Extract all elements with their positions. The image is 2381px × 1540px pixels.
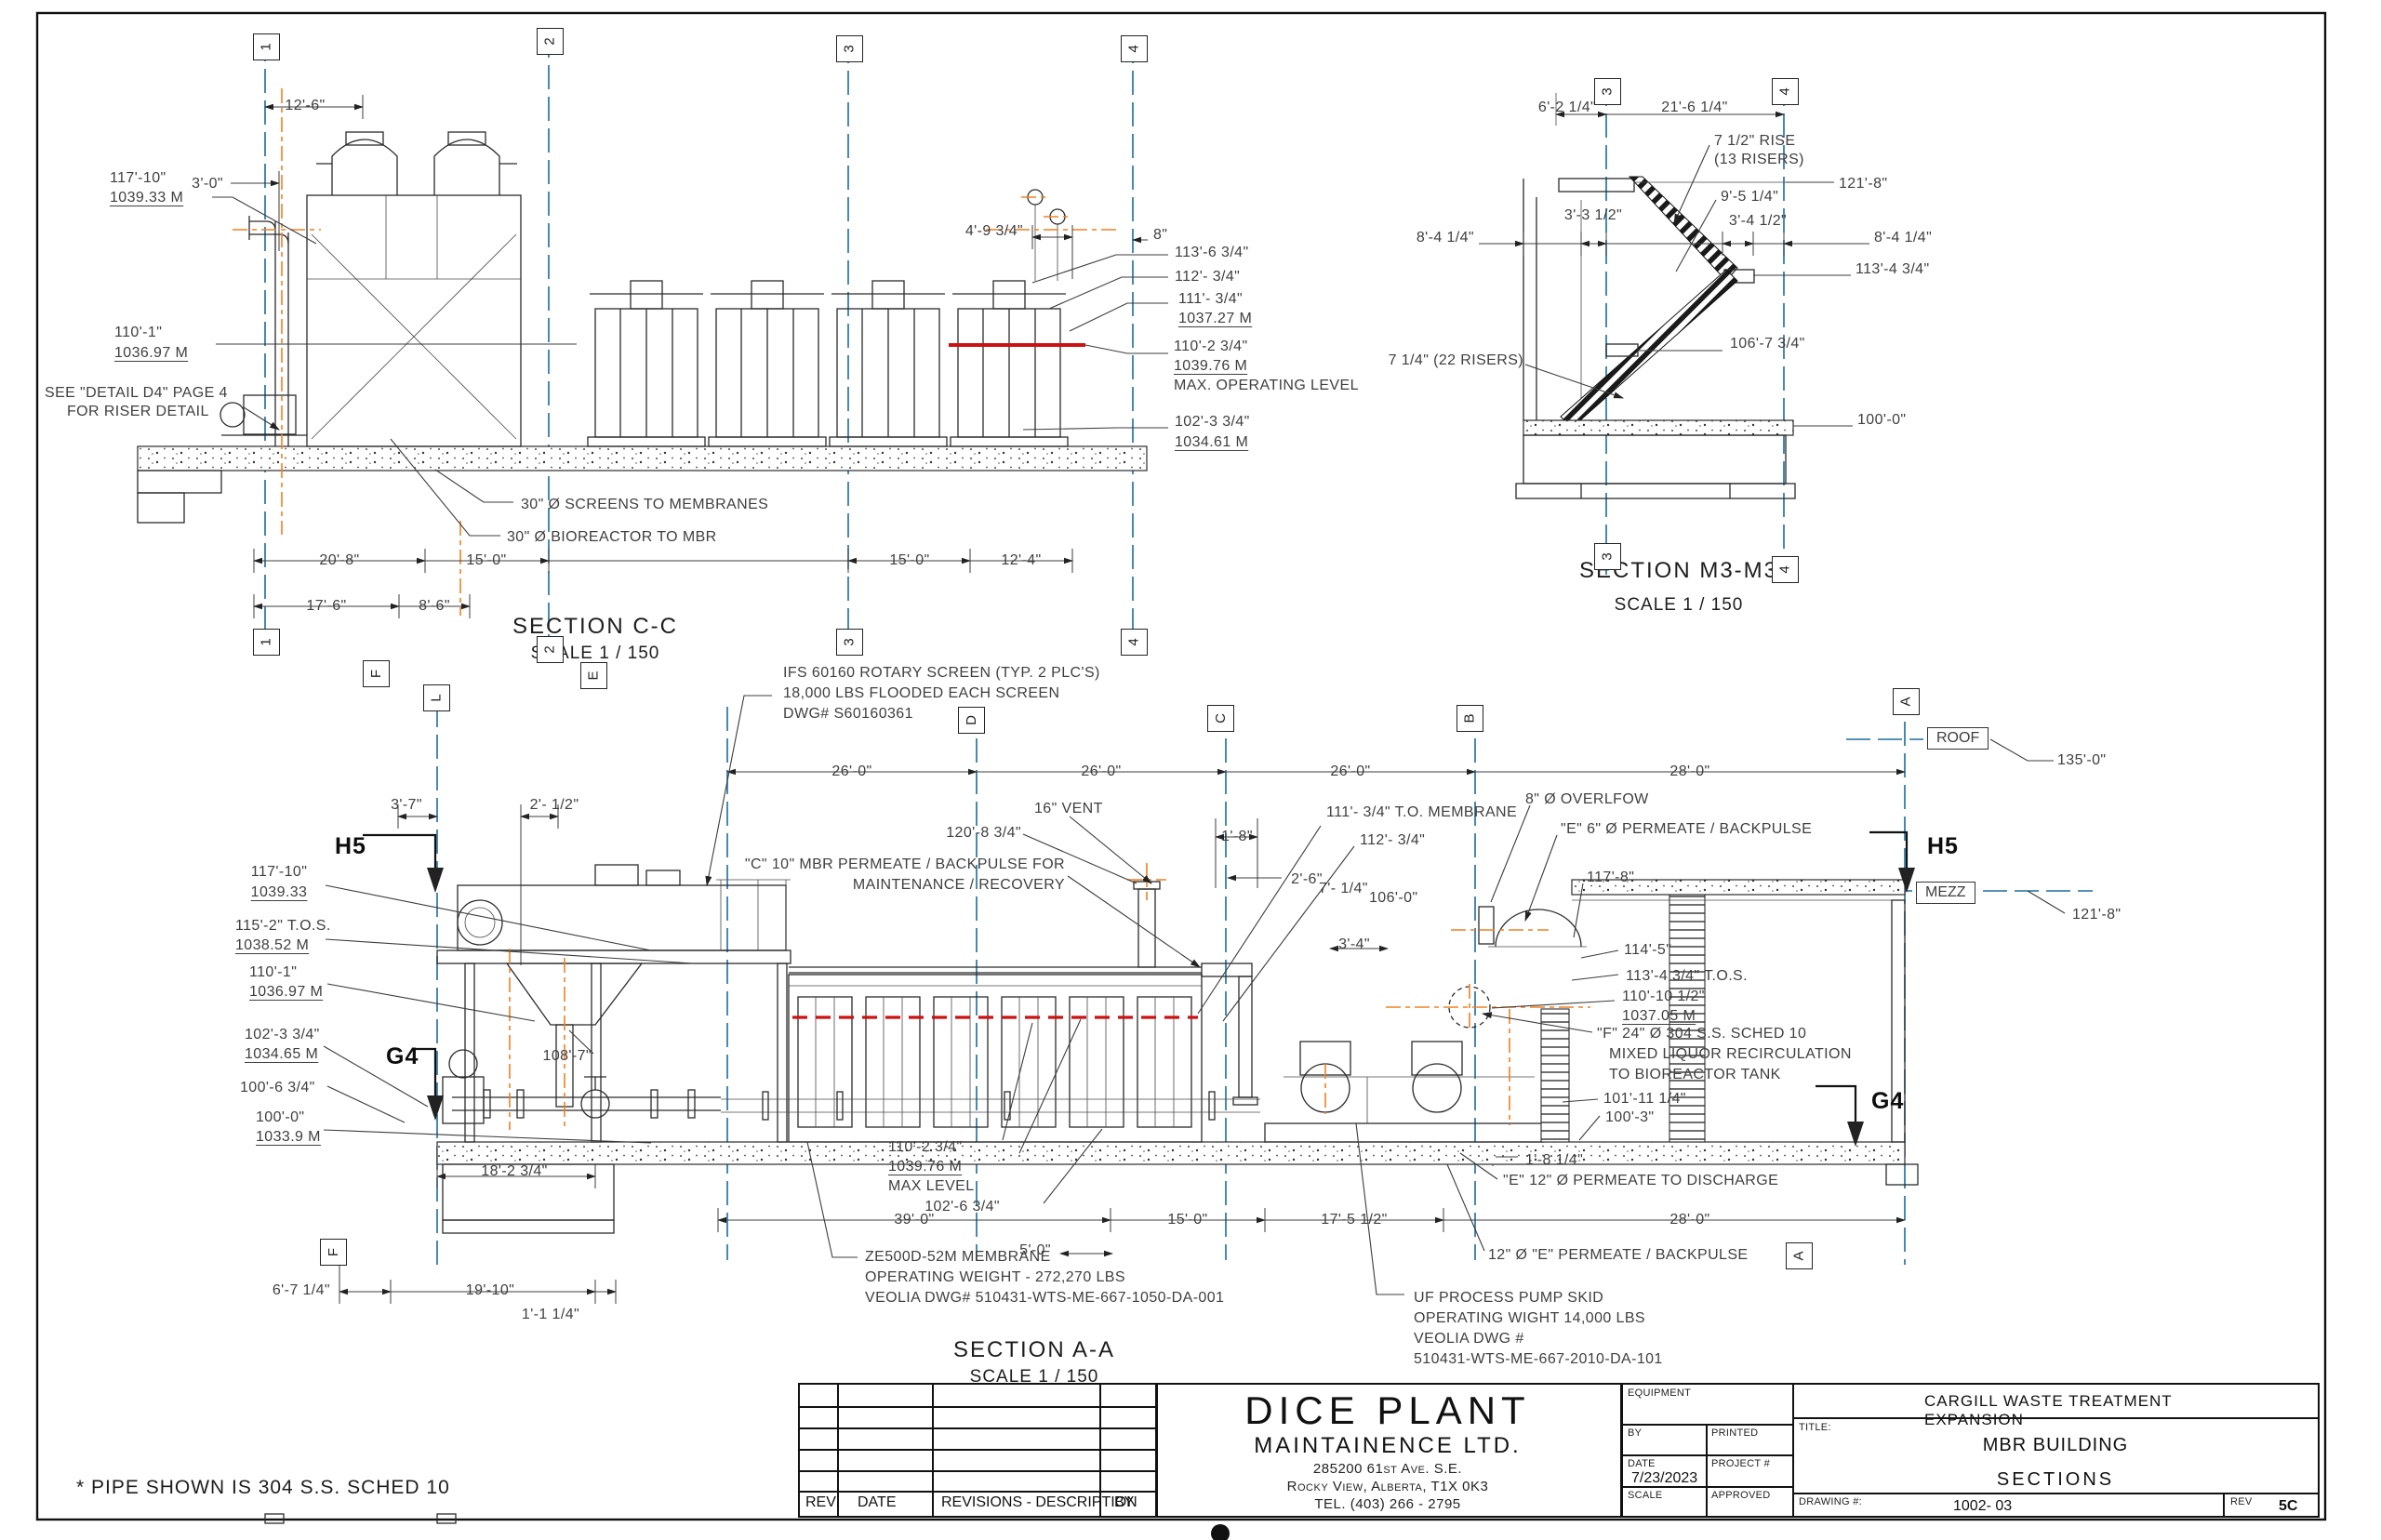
pipe-note: MIXED LIQUOR RECIRCULATION [1609,1045,1852,1063]
level-label: 113'-4 3/4" T.O.S. [1626,967,1748,985]
section-cut-marker: H5 [1927,833,1959,860]
grid-bubble: 4 [1772,556,1799,583]
elevation-label: 1039.33 M [110,189,183,206]
pipe-note: 8" Ø OVERLFOW [1525,790,1649,808]
level-label: 101'-11 1/4" [1603,1090,1686,1108]
level-label: 121'-8" [2072,906,2121,923]
equipment-note: 510431-WTS-ME-667-2010-DA-101 [1414,1350,1663,1368]
level-label: 114'-5" [1624,941,1671,959]
dim-label: 39'-0" [894,1211,934,1228]
elevation-label: 1038.52 M [235,936,309,954]
elevation-label: 110'-1" [114,324,162,341]
by-label: BY [1628,1427,1642,1439]
dim-label: 17'-6" [306,597,346,615]
dim-label: 15'-0" [466,551,506,569]
grid-bubble: A [1786,1242,1813,1269]
dim-label: 18'-2 3/4" [481,1162,547,1180]
equipment-note: OPERATING WEIGHT - 272,270 LBS [865,1268,1125,1286]
dim-label: 3'-3 1/2" [1564,206,1622,224]
equipment-note: UF PROCESS PUMP SKID [1414,1289,1603,1307]
elevation-label: 100'-6 3/4" [240,1079,315,1096]
grid-bubble: 3 [1594,78,1621,105]
level-label: 1034.61 M [1175,433,1248,451]
dim-label: 21'-6 1/4" [1661,99,1727,116]
dim-label: 28'-0" [1669,1211,1709,1228]
dim-label: 19'-10" [466,1281,514,1299]
grid-bubble: B [1457,705,1483,732]
dim-label: 17'-5 1/2" [1321,1211,1387,1228]
section-cut-marker: G4 [386,1043,419,1070]
drawing-sheet: 12'-6" 3'-0" 117'-10" 1039.33 M 110'-1" … [0,0,2381,1540]
dim-label: 12'-6" [285,97,325,114]
grid-bubble: 4 [1121,629,1148,656]
section-cut-marker: G4 [1871,1088,1904,1115]
level-label: 108'-7" [543,1047,592,1065]
dim-label: 26'-0" [831,763,871,780]
pipe-note: MAINTENANCE / RECOVERY [853,876,1065,894]
pipe-note: "E" 12" Ø PERMEATE TO DISCHARGE [1503,1172,1778,1189]
stair-note: 7 1/4" (22 RISERS) [1389,352,1523,369]
grid-bubble: D [958,707,985,734]
dim-label: 2'-6" [1291,870,1323,888]
grid-bubble: 3 [1594,543,1621,570]
elevation-label: 100'-0" [256,1109,304,1126]
equipment-note: DWG# S60160361 [783,705,913,723]
elevation-label: 1036.97 M [249,983,323,1001]
grid-bubble: 1 [253,33,280,60]
dim-label: 3'-4 1/2" [1729,212,1787,230]
elevation-label: 115'-2" T.O.S. [235,917,331,935]
company-phone: TEL. (403) 266 - 2795 [1314,1496,1460,1512]
level-label: 1037.27 M [1178,310,1252,327]
pipe-note: TO BIOREACTOR TANK [1609,1066,1781,1083]
level-label: 112'- 3/4" [1360,831,1425,849]
date-label: DATE [1628,1458,1656,1469]
elevation-label: 1033.9 M [256,1128,321,1146]
equipment-note: ZE500D-52M MEMBRANE [865,1248,1051,1266]
grid-bubble: 2 [537,636,564,663]
dim-label: 1'-8 1/4" [1525,1151,1583,1169]
level-note: MAX. OPERATING LEVEL [1174,377,1359,394]
dim-label: 20'-8" [319,551,359,569]
level-label: 110'-2 3/4" [1174,338,1248,355]
level-label: 113'-4 3/4" [1856,260,1930,278]
company-name: MAINTAINENCE LTD. [1254,1433,1521,1459]
stair-note: 7 1/2" RISE [1714,132,1795,150]
approved-label: APPROVED [1711,1490,1771,1501]
level-label: 135'-0" [2057,751,2106,769]
level-note: MAX LEVEL [888,1177,975,1195]
pipe-note: 30" Ø BIOREACTOR TO MBR [507,528,717,546]
drawing-number: 1002- 03 [1953,1498,2012,1515]
drawing-title: MBR BUILDING [1983,1435,2128,1456]
company-address: 285200 61st Ave. S.E. [1313,1461,1462,1477]
dim-label: 1'-1 1/4" [522,1306,579,1323]
date-value: 7/23/2023 [1631,1470,1697,1487]
dim-label: 8'-4 1/4" [1417,229,1474,246]
date-col-header: DATE [858,1494,896,1511]
level-label: 100'-0" [1857,411,1906,429]
pipe-note: "F" 24" Ø 304 S.S. SCHED 10 [1597,1025,1806,1042]
grid-bubble: 4 [1772,78,1799,105]
dim-label: 28'-0" [1669,763,1709,780]
desc-col-header: REVISIONS - DESCRIPTION [941,1494,1137,1511]
grid-bubble: 2 [537,28,564,55]
dim-label: 2'- 1/2" [530,796,579,814]
dim-label: 15'-0" [889,551,929,569]
title-label: TITLE: [1799,1422,1831,1433]
detail-note: SEE "DETAIL D4" PAGE 4 [45,384,228,402]
scale-label: SCALE [1628,1490,1663,1501]
level-label: 112'- 3/4" [1175,268,1240,285]
dim-label: 1'-8" [1221,828,1253,845]
drawing-linework [0,0,2381,1540]
dim-label: 15'-0" [1167,1211,1207,1228]
dim-label: 4'-9 3/4" [965,222,1023,240]
drawing-number-label: DRAWING #: [1799,1496,1862,1507]
project-label: PROJECT # [1711,1458,1770,1469]
elevation-label: 1034.65 M [245,1045,318,1063]
pipe-note: 12" Ø "E" PERMEATE / BACKPULSE [1488,1246,1749,1264]
dim-label: 26'-0" [1081,763,1121,780]
equipment-note: IFS 60160 ROTARY SCREEN (TYP. 2 PLC'S) [783,664,1100,682]
grid-bubble: F [320,1239,347,1266]
dim-label: 12'-4" [1001,551,1041,569]
equipment-note: 18,000 LBS FLOODED EACH SCREEN [783,684,1059,702]
grid-bubble: L [423,684,450,711]
level-label: 111'- 3/4" [1178,290,1243,308]
level-label: 110'-2 3/4" [888,1138,963,1156]
elevation-label: 110'-1" [249,963,297,981]
equipment-label: EQUIPMENT [1628,1387,1691,1399]
printed-label: PRINTED [1711,1427,1758,1439]
roof-level-tag: ROOF [1927,727,1989,750]
grid-bubble: 3 [836,35,863,62]
level-label: 1039.76 M [888,1158,962,1175]
level-label: 121'-8" [1839,175,1887,192]
grid-bubble: F [363,660,390,687]
equipment-note: VEOLIA DWG# 510431-WTS-ME-667-1050-DA-00… [865,1289,1224,1307]
level-label: 113'-6 3/4" [1175,244,1249,261]
company-address: Rocky View, Alberta, T1X 0K3 [1287,1479,1489,1494]
stair-note: (13 RISERS) [1714,151,1804,168]
project-title: CARGILL WASTE TREATMENT EXPANSION [1924,1392,2187,1429]
dim-label: 6'-7 1/4" [273,1281,330,1299]
grid-bubble: 1 [253,629,280,656]
elevation-label: 117'-10" [251,863,308,881]
level-label: 106'-7 3/4" [1730,335,1805,352]
grid-bubble: A [1893,688,1920,715]
equipment-note: OPERATING WIGHT 14,000 LBS [1414,1309,1645,1327]
pipe-note: "C" 10" MBR PERMEATE / BACKPULSE FOR [745,856,1065,873]
level-label: 117'-8" [1587,869,1634,886]
dim-label: 9'-5 1/4" [1721,188,1778,206]
dim-label: 8'-4 1/4" [1874,229,1932,246]
level-label: 100'-3" [1605,1109,1654,1126]
pipe-note: 16" VENT [1034,800,1103,817]
level-label: 120'-8 3/4" [946,824,1021,842]
section-cut-marker: H5 [335,833,366,860]
level-label: 102'-3 3/4" [1175,413,1250,431]
grid-bubble: C [1207,705,1234,732]
equipment-note: VEOLIA DWG # [1414,1330,1524,1347]
mezz-level-tag: MEZZ [1916,882,1975,904]
dim-label: 8'-6" [419,597,450,615]
drawing-subtitle: SECTIONS [1997,1469,2114,1491]
pipe-note: "E" 6" Ø PERMEATE / BACKPULSE [1561,820,1812,838]
level-label: 110'-10 1/2" [1622,988,1705,1005]
pipe-note: 30" Ø SCREENS TO MEMBRANES [521,496,768,513]
elevation-label: 117'-10" [110,169,166,187]
level-label: 1039.76 M [1174,357,1247,375]
general-note: * PIPE SHOWN IS 304 S.S. SCHED 10 [76,1477,450,1499]
rev-label: REV [2230,1496,2253,1507]
level-label: 106'-0" [1369,889,1417,907]
dim-label: 3'-7" [391,796,422,814]
detail-note: FOR RISER DETAIL [67,403,209,420]
rev-col-header: REV [805,1494,836,1511]
dim-label: 8" [1153,226,1167,244]
elevation-label: 102'-3 3/4" [245,1026,320,1043]
dim-label: 26'-0" [1330,763,1370,780]
title-block: REV DATE REVISIONS - DESCRIPTION BY DICE… [798,1383,2320,1518]
dim-label: 7'- 1/4" [1319,880,1368,897]
by-col-header: BY [1114,1494,1134,1511]
level-label: 111'- 3/4" T.O. MEMBRANE [1326,803,1517,821]
section-title: SECTION A-A [953,1337,1115,1363]
section-scale: SCALE 1 / 150 [1615,595,1744,616]
grid-bubble: 4 [1121,35,1148,62]
dim-label: 3'-0" [192,175,223,192]
dim-label: 6'-2 1/4" [1538,99,1596,116]
elevation-label: 1039.33 [251,883,308,901]
grid-bubble: 3 [836,629,863,656]
elevation-label: 1036.97 M [114,344,188,362]
level-label: 102'-6 3/4" [924,1198,1000,1215]
grid-bubble: E [580,662,607,689]
rev-value: 5C [2279,1498,2297,1515]
level-label: 1037.05 M [1622,1007,1696,1025]
dim-label: 3'-4" [1338,936,1370,953]
company-name: DICE PLANT [1244,1388,1530,1433]
